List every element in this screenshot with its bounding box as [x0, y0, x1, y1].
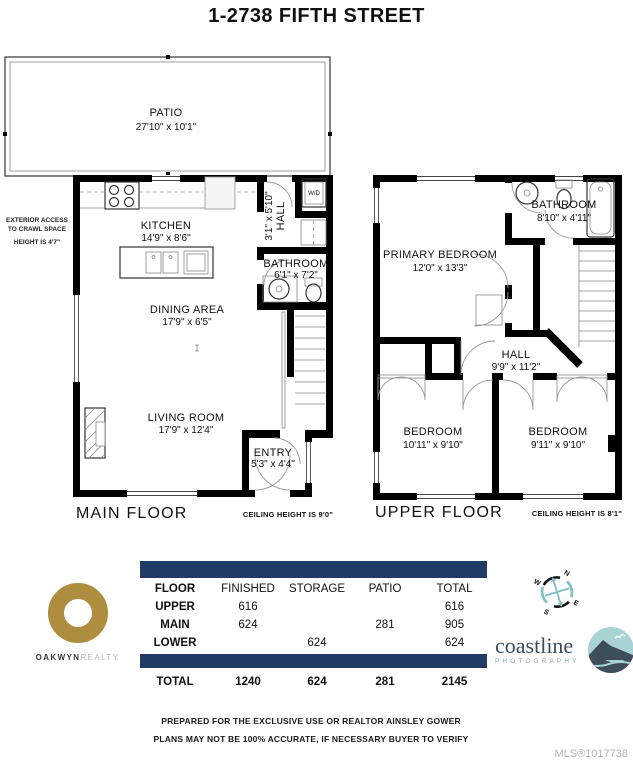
bathroom-dims: 6'1" x 7'2": [274, 270, 318, 281]
main-floor-title: MAIN FLOOR: [76, 505, 188, 522]
dining-dims: 17'9" x 6'5": [162, 317, 212, 328]
patio-dims: 27'10" x 10'1": [136, 122, 197, 133]
living-room-dims: 17'9" x 12'4": [159, 425, 214, 436]
upper-staircase: [579, 245, 615, 347]
compass-rose-icon: N E S W: [528, 562, 586, 620]
table-bottom-bar: [140, 654, 487, 668]
mls-number: MLS®1017738: [533, 748, 628, 760]
bedroom-left-label: BEDROOM: [404, 426, 463, 438]
living-room-label: LIVING ROOM: [148, 412, 225, 424]
compass-n: N: [563, 570, 571, 579]
floorplan-page: 1-2738 FIFTH STREET: [0, 0, 633, 768]
coastline-photography-logo: coastline PHOTOGRAPHY: [495, 626, 633, 674]
upper-ceiling-note: CEILING HEIGHT IS 8'1": [532, 509, 622, 518]
entry-label: ENTRY: [254, 447, 293, 459]
oakwyn-realty-logo: OAKWYNREALTY: [30, 583, 125, 662]
hall-dims: 3'1" x 5'10": [264, 191, 275, 241]
main-floor-walls: [73, 175, 333, 497]
col-storage: STORAGE: [286, 583, 348, 595]
kitchen-dims: 14'9" x 8'6": [141, 233, 191, 244]
bedroom-right-dims: 9'11" x 9'10": [531, 440, 586, 451]
upper-hall-label: HALL: [502, 349, 531, 361]
coastline-badge-icon: [587, 626, 633, 674]
toilet-icon: [305, 278, 322, 302]
bedroom-left-dims: 10'11" x 9'10": [403, 440, 463, 451]
disclaimer: PREPARED FOR THE EXCLUSIVE USE OR REALTO…: [0, 712, 622, 748]
wd-label: W/D: [308, 191, 320, 197]
table-row: LOWER 624 624: [140, 634, 487, 652]
hall-label: HALL: [275, 202, 287, 231]
primary-bedroom-label: PRIMARY BEDROOM: [383, 249, 497, 261]
bedroom-right-label: BEDROOM: [529, 426, 588, 438]
linen-closet: [301, 220, 326, 245]
entry-dims: 5'3" x 4'4": [251, 459, 295, 470]
table-row: UPPER 616 616: [140, 598, 487, 616]
col-floor: FLOOR: [140, 583, 210, 595]
upper-floor-title: UPPER FLOOR: [375, 504, 503, 521]
bathroom-label: BATHROOM: [263, 258, 328, 270]
upper-bathroom-label: BATHROOM: [531, 199, 596, 211]
main-ceiling-note: CEILING HEIGHT IS 9'0": [243, 510, 333, 519]
stove-icon: [105, 182, 139, 209]
fireplace-icon: [85, 408, 105, 458]
exterior-access-note: EXTERIOR ACCESS TO CRAWL SPACE HEIGHT IS…: [2, 216, 72, 247]
kitchen-label: KITCHEN: [141, 220, 191, 232]
main-floor-plan: PATIO 27'10" x 10'1" KITCHEN 14'9" x 8'6…: [0, 40, 345, 532]
primary-bedroom-dims: 12'0" x 13'3": [413, 263, 468, 274]
col-finished: FINISHED: [210, 583, 286, 595]
compass-w: W: [532, 578, 541, 587]
coastline-wordmark: coastline: [495, 636, 580, 656]
patio-label: PATIO: [150, 107, 183, 119]
coastline-subtitle: PHOTOGRAPHY: [495, 658, 580, 665]
table-header-row: FLOOR FINISHED STORAGE PATIO TOTAL: [140, 580, 487, 598]
oakwyn-wordmark: OAKWYNREALTY: [30, 653, 125, 662]
upper-floor-plan: PRIMARY BEDROOM 12'0" x 13'3" BATHROOM 8…: [360, 155, 633, 523]
col-total: TOTAL: [422, 583, 487, 595]
page-title: 1-2738 FIFTH STREET: [0, 5, 633, 28]
area-table: FLOOR FINISHED STORAGE PATIO TOTAL UPPER…: [140, 561, 487, 691]
table-total-row: TOTAL 1240 624 281 2145: [140, 673, 487, 691]
oakwyn-ring-icon: [48, 583, 108, 643]
compass-e: E: [572, 599, 580, 608]
table-row: MAIN 624 281 905: [140, 616, 487, 634]
disclaimer-line1: PREPARED FOR THE EXCLUSIVE USE OR REALTO…: [0, 712, 622, 730]
col-patio: PATIO: [348, 583, 422, 595]
primary-closet: [476, 295, 502, 325]
kitchen-island: [120, 247, 213, 278]
upper-hall-dims: 9'9" x 11'2": [492, 362, 541, 373]
dining-label: DINING AREA: [150, 304, 225, 316]
compass-s: S: [542, 609, 550, 618]
upper-bathroom-dims: 8'10" x 4'11": [537, 213, 592, 224]
table-top-bar: [140, 561, 487, 578]
disclaimer-line2: PLANS MAY NOT BE 100% ACCURATE, IF NECES…: [0, 730, 622, 748]
